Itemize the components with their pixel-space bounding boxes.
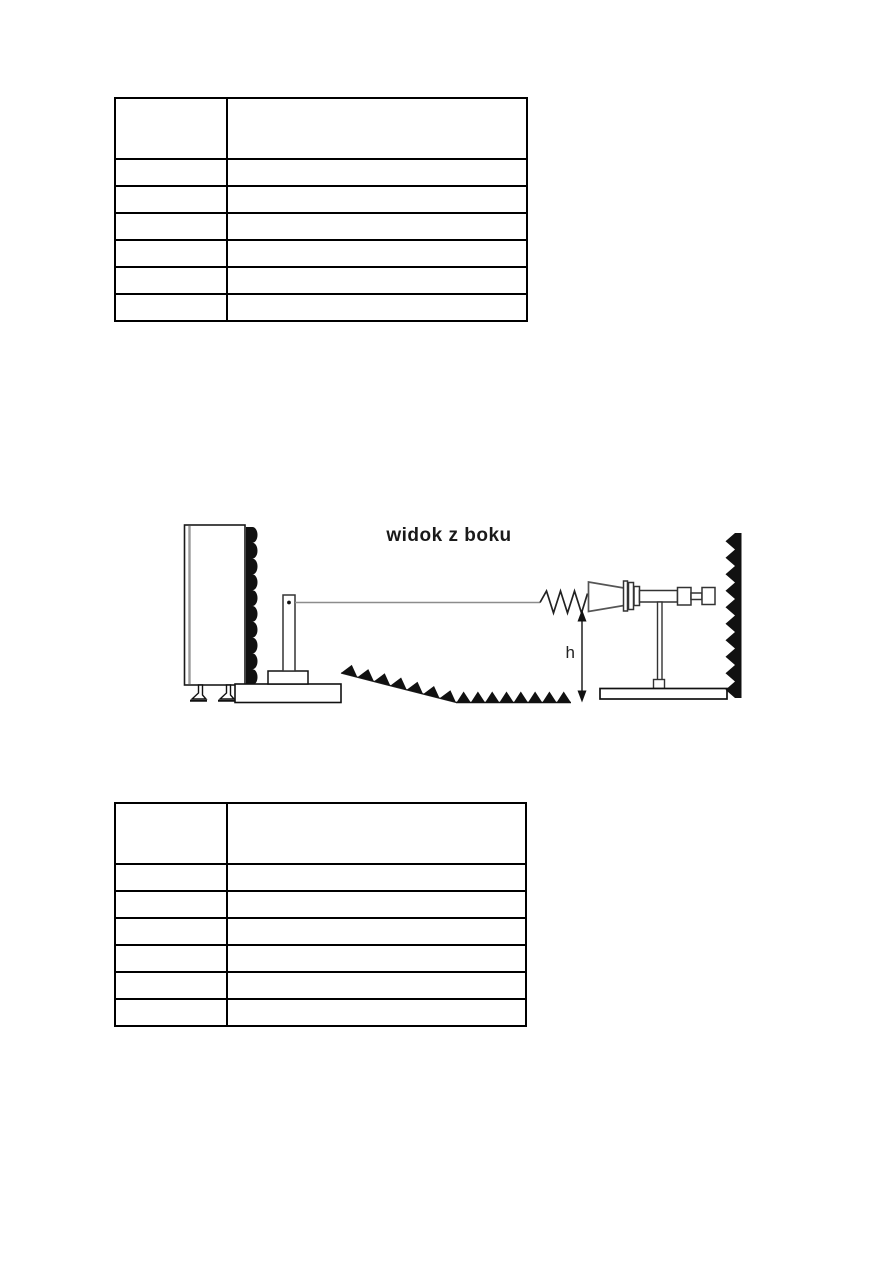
table-cell bbox=[227, 972, 526, 999]
top-measurement-table bbox=[114, 97, 528, 322]
table-cell bbox=[227, 864, 526, 891]
connector-rod bbox=[691, 593, 702, 600]
horn-collar bbox=[634, 587, 640, 606]
document-page: widok z boku bbox=[0, 0, 893, 1263]
table-cell bbox=[227, 240, 527, 267]
arrow-up-icon bbox=[578, 610, 587, 622]
table-cell bbox=[115, 240, 227, 267]
antenna-mast bbox=[268, 595, 308, 684]
antenna-stand bbox=[600, 602, 727, 699]
end-block bbox=[702, 588, 715, 605]
table-cell bbox=[115, 267, 227, 294]
stand-foot bbox=[654, 680, 665, 689]
height-label: h bbox=[566, 643, 575, 662]
floor-absorber-row bbox=[456, 692, 571, 703]
wall-absorber bbox=[726, 533, 742, 698]
side-view-diagram: widok z boku bbox=[170, 513, 752, 711]
table-cell bbox=[227, 186, 527, 213]
table-cell bbox=[115, 294, 227, 321]
horn-flange bbox=[624, 581, 628, 611]
mast-feed-point bbox=[287, 601, 291, 605]
table-cell bbox=[227, 945, 526, 972]
mast-platform bbox=[235, 684, 341, 703]
table-cell bbox=[227, 267, 527, 294]
horn-mouth bbox=[589, 582, 625, 612]
table-cell bbox=[115, 864, 227, 891]
table-cell bbox=[115, 999, 227, 1026]
stand-base-plate bbox=[600, 689, 727, 700]
table-header-cell bbox=[115, 803, 227, 864]
table-cell bbox=[227, 294, 527, 321]
table-cell bbox=[227, 213, 527, 240]
table-header-cell bbox=[227, 98, 527, 159]
table-cell bbox=[115, 945, 227, 972]
table-cell bbox=[115, 186, 227, 213]
table-cell bbox=[115, 213, 227, 240]
connector-block bbox=[678, 588, 692, 606]
table-header-cell bbox=[227, 803, 526, 864]
arrow-down-icon bbox=[578, 691, 587, 703]
diagram-title: widok z boku bbox=[385, 525, 511, 546]
table-cell bbox=[227, 159, 527, 186]
floor-absorber-slope bbox=[341, 665, 457, 703]
spring-symbol bbox=[540, 591, 588, 613]
stand-pole bbox=[658, 602, 663, 681]
table-cell bbox=[115, 918, 227, 945]
cabinet-feet bbox=[190, 685, 235, 701]
table-header-cell bbox=[115, 98, 227, 159]
bottom-measurement-table bbox=[114, 802, 527, 1027]
table-cell bbox=[115, 159, 227, 186]
table-cell bbox=[227, 918, 526, 945]
equipment-cabinet bbox=[185, 525, 246, 685]
cabinet-absorber-strip bbox=[246, 527, 258, 685]
waveguide-tube bbox=[640, 591, 678, 603]
table-cell bbox=[115, 972, 227, 999]
table-cell bbox=[227, 891, 526, 918]
table-cell bbox=[115, 891, 227, 918]
horn-antenna bbox=[589, 581, 716, 612]
table-cell bbox=[227, 999, 526, 1026]
height-dimension: h bbox=[566, 610, 587, 703]
